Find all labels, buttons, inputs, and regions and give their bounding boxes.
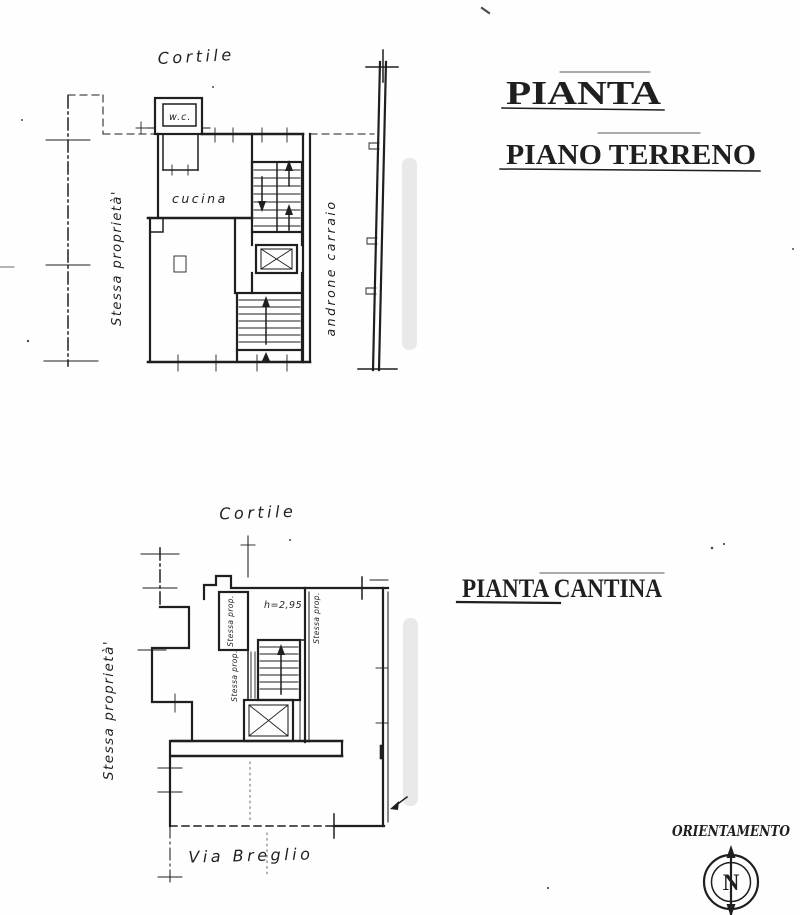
floor-plan-drawing: Cortile w.c.	[0, 0, 800, 915]
ground-floor-plan: Cortile w.c.	[0, 45, 417, 371]
basement-title: PIANTA CANTINA	[462, 574, 662, 603]
scan-shadow-band-bottom	[403, 618, 418, 806]
upper-staircase	[252, 160, 302, 245]
basement-plan: Cortile	[101, 502, 418, 884]
ground-right-wall	[358, 50, 398, 370]
wc-room: w.c.	[136, 98, 210, 175]
street-label: Via Breglio	[188, 844, 313, 866]
stray-arrow-mark	[390, 797, 407, 810]
ceiling-height-label: h=2,95	[264, 600, 302, 611]
basement-courtyard-label: Cortile	[219, 502, 297, 524]
same-property-note-2: Stessa prop.	[230, 650, 239, 702]
compass-rose-icon: N	[704, 845, 758, 915]
basement-title-block: PIANTA CANTINA	[457, 573, 664, 603]
ground-title-line2: PIANO TERRENO	[506, 139, 756, 171]
scan-shadow-band-top	[402, 158, 417, 350]
kitchen-label: cucina	[172, 191, 228, 206]
ground-title-line1: PIANTA	[506, 75, 662, 112]
same-property-note-3: Stessa prop.	[312, 592, 321, 644]
orientation-label: ORIENTAMENTO	[672, 822, 790, 840]
ground-property-boundary	[0, 95, 374, 366]
basement-rooms: h=2,95 Stessa prop. Stessa prop. Stessa …	[204, 576, 321, 742]
basement-corridor	[170, 741, 384, 838]
basement-left-boundary	[138, 548, 192, 884]
wc-label: w.c.	[169, 112, 191, 123]
basement-same-property-label: Stessa proprietà'	[101, 640, 117, 780]
orientation-block: ORIENTAMENTO N	[672, 822, 790, 915]
scanned-floor-plan-page: Cortile w.c.	[0, 0, 800, 915]
ground-same-property-label: Stessa proprietà'	[110, 190, 125, 326]
ground-courtyard-label: Cortile	[157, 45, 235, 68]
ground-floor-title-block: PIANTA PIANO TERRENO	[500, 72, 760, 171]
compass-north-letter: N	[723, 870, 740, 895]
carriage-entrance-label: androne carraio	[323, 200, 338, 337]
elevator-shaft	[252, 245, 302, 293]
lower-staircase	[237, 293, 302, 362]
same-property-note-1: Stessa prop.	[226, 595, 235, 647]
